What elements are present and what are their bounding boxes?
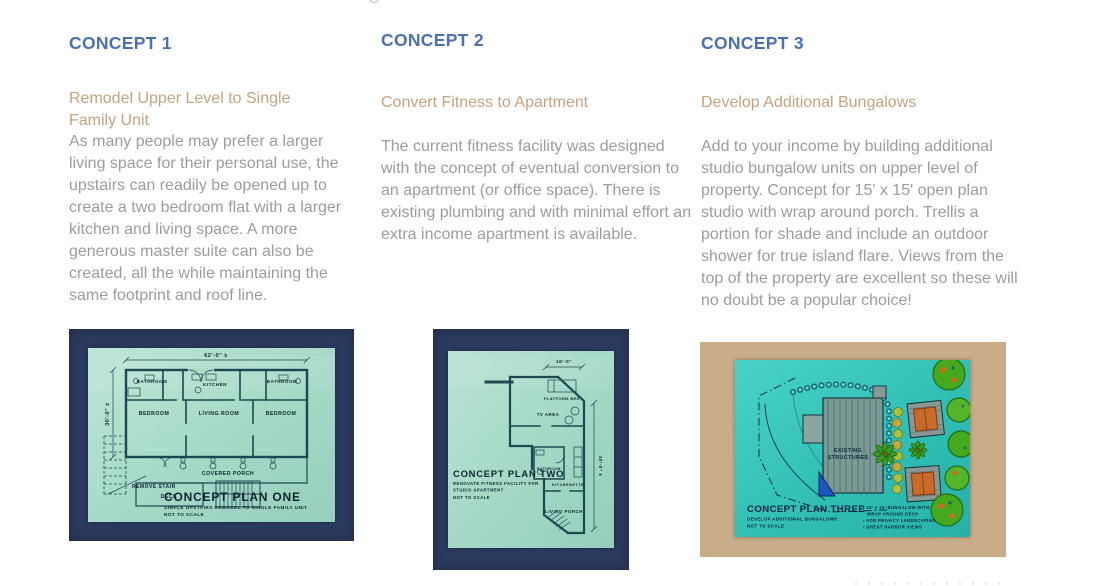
svg-text:CONCEPT PLAN THREE: CONCEPT PLAN THREE xyxy=(747,504,865,515)
concept-3-heading: CONCEPT 3 xyxy=(701,33,804,54)
svg-text:STUDIO APARTMENT: STUDIO APARTMENT xyxy=(453,488,504,493)
svg-text:30'-0" ±: 30'-0" ± xyxy=(105,402,111,425)
concept-1-subheading: Remodel Upper Level to Single Family Uni… xyxy=(69,88,321,132)
svg-text:EXISTING: EXISTING xyxy=(834,448,862,454)
svg-text:CONCEPT PLAN TWO: CONCEPT PLAN TWO xyxy=(453,468,564,479)
svg-text:STRUCTURES: STRUCTURES xyxy=(828,455,869,461)
svg-text:SIMPLE UPSTAIRS REMODEL TO SIN: SIMPLE UPSTAIRS REMODEL TO SINGLE FAMILY… xyxy=(164,505,307,510)
concept-3-subheading: Develop Additional Bungalows xyxy=(701,92,916,114)
svg-text:40'-0" ±: 40'-0" ± xyxy=(597,456,603,477)
svg-text:• 15' x 15' BUNGALOW WITH: • 15' x 15' BUNGALOW WITH xyxy=(863,505,930,510)
concept-3-body: Add to your income by building additiona… xyxy=(701,136,1021,312)
svg-text:16'-0": 16'-0" xyxy=(556,359,572,365)
svg-text:LIVING ROOM: LIVING ROOM xyxy=(199,411,239,417)
svg-text:62'-0" ±: 62'-0" ± xyxy=(204,353,227,359)
concept-plan-two-image: 16'-0" 40'-0" ± xyxy=(433,329,629,570)
concept-1-heading: CONCEPT 1 xyxy=(69,33,172,54)
svg-text:BEDROOM: BEDROOM xyxy=(139,411,170,417)
svg-text:KITCHENETTE: KITCHENETTE xyxy=(552,483,584,487)
site-plan-three-sketch: EXISTING STRUCTURES xyxy=(735,360,970,537)
svg-text:WRAP AROUND DECK: WRAP AROUND DECK xyxy=(867,512,919,517)
floor-plan-two-sketch: 16'-0" 40'-0" ± xyxy=(448,351,614,548)
concepts-page: CONCEPT 1 Remodel Upper Level to Single … xyxy=(0,0,1093,586)
svg-text:COVERED PORCH: COVERED PORCH xyxy=(202,471,254,477)
cropped-text-fragment xyxy=(369,0,379,3)
concept-plan-one-image: 62'-0" ± 30'-0" ± xyxy=(69,329,354,541)
svg-text:BEDROOM: BEDROOM xyxy=(266,411,297,417)
svg-text:BATHROOM: BATHROOM xyxy=(137,379,168,384)
svg-text:LIVING PORCH: LIVING PORCH xyxy=(545,509,583,514)
floor-plan-one-sketch: 62'-0" ± 30'-0" ± xyxy=(88,348,335,522)
concept-2-body: The current fitness facility was designe… xyxy=(381,136,693,246)
svg-text:TV AREA: TV AREA xyxy=(537,412,560,417)
svg-text:PLATFORM BED: PLATFORM BED xyxy=(544,397,580,401)
svg-text:KITCHEN: KITCHEN xyxy=(203,382,227,387)
concept-1-body: As many people may prefer a larger livin… xyxy=(69,131,361,307)
concept-plan-three-image: EXISTING STRUCTURES xyxy=(700,342,1006,557)
svg-text:• GREAT HARBOR VIEWS: • GREAT HARBOR VIEWS xyxy=(863,525,922,530)
svg-text:RENOVATE FITNESS FACILITY FOR: RENOVATE FITNESS FACILITY FOR xyxy=(453,481,539,486)
svg-text:NOT TO SCALE: NOT TO SCALE xyxy=(747,524,784,529)
concept-2-subheading: Convert Fitness to Apartment xyxy=(381,92,588,114)
svg-text:NOT TO SCALE: NOT TO SCALE xyxy=(164,512,204,517)
cropped-bottom-text-fragment xyxy=(855,582,1005,585)
concept-2-heading: CONCEPT 2 xyxy=(381,30,484,51)
svg-text:CONCEPT PLAN ONE: CONCEPT PLAN ONE xyxy=(164,490,301,504)
svg-text:NOT TO SCALE: NOT TO SCALE xyxy=(453,495,490,500)
svg-text:DEVELOP ADDITIONAL BUNGALOWS: DEVELOP ADDITIONAL BUNGALOWS xyxy=(747,517,838,522)
svg-text:BATHROOM: BATHROOM xyxy=(267,379,298,384)
svg-text:• ADD PRIVACY LANDSCAPING: • ADD PRIVACY LANDSCAPING xyxy=(863,518,936,523)
